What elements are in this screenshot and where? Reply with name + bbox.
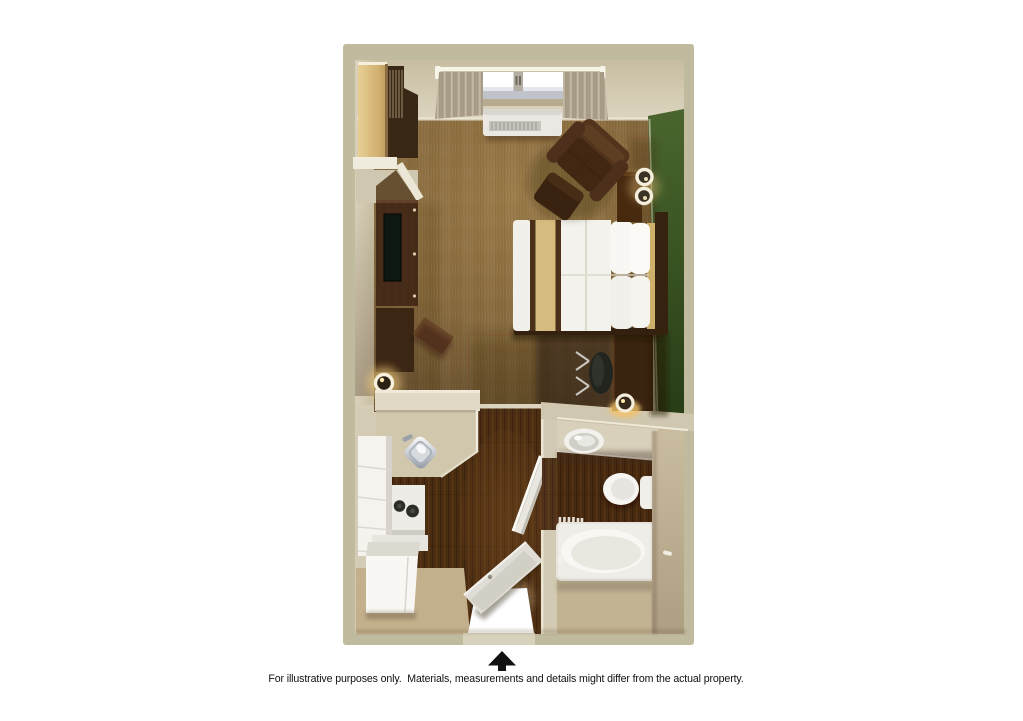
svg-text:For illustrative purposes only: For illustrative purposes only. Material…: [268, 673, 743, 685]
